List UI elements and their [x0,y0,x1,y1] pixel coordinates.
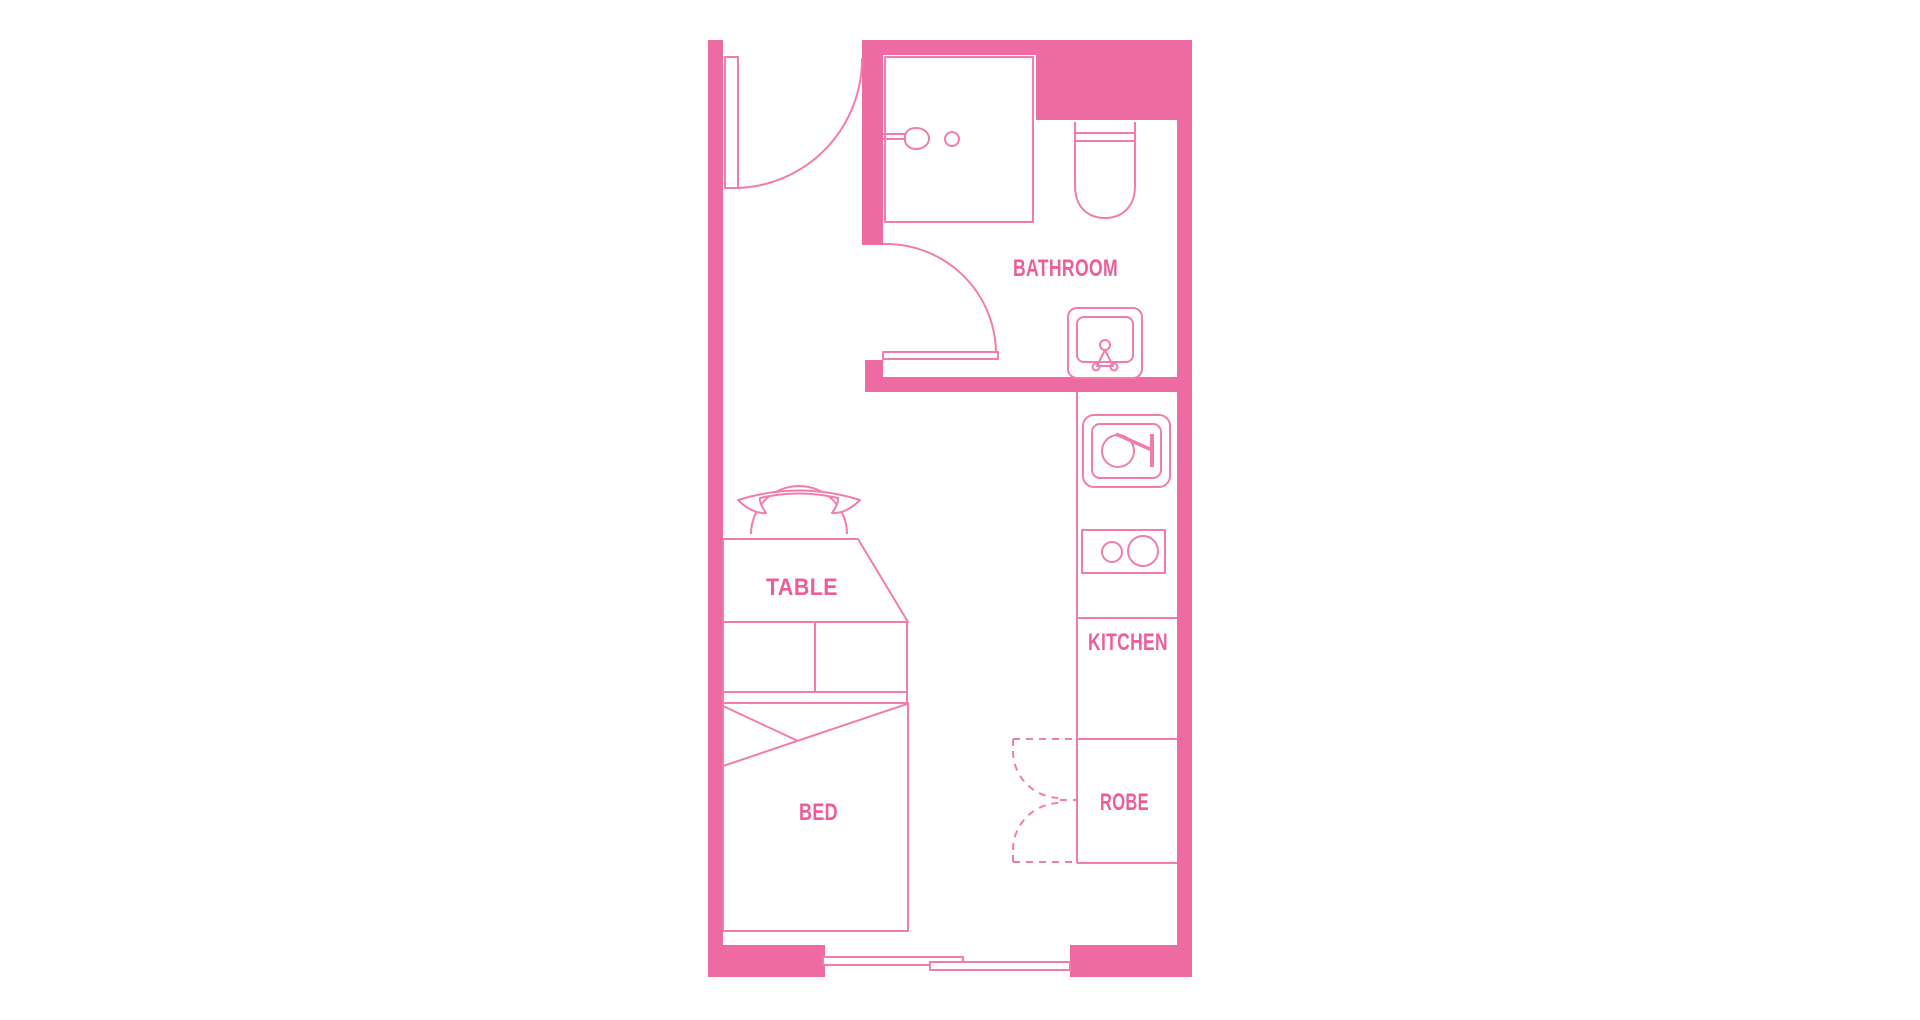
floor-plan: BATHROOM KITCHEN ROBE [0,0,1920,1020]
walls [708,40,1192,977]
wall-bathroom-bottom [865,377,1192,392]
toilet-icon [1075,122,1135,218]
drawers-icon [723,622,907,703]
bathroom-door-swing-arc [883,244,996,352]
wall-bottom-left [708,945,825,977]
table-area: TABLE [723,486,908,703]
room-label-kitchen: KITCHEN [1088,629,1168,656]
room-label-bed: BED [799,799,838,826]
window-icon [823,957,1070,970]
shower-mixer-icon [945,132,959,146]
wall-bottom-right [1070,945,1192,977]
bathroom-door-icon [883,244,998,359]
wall-bathroom-door-jamb [865,360,883,380]
wall-right [1177,40,1192,977]
shower-head-icon [883,128,929,149]
bed-area: BED [723,703,908,931]
wall-top-right-block [1036,40,1192,120]
robe: ROBE [1013,739,1149,862]
entry-door-icon [725,57,862,188]
wall-bathroom-partition [862,40,883,245]
bathroom-door-leaf [883,352,998,359]
entry-door-leaf [725,57,738,188]
cooktop-icon [1082,530,1165,573]
room-label-bathroom: BATHROOM [1013,255,1118,282]
basin-icon [1068,308,1142,378]
window-panel-2 [930,962,1070,970]
kitchen-sink-icon [1083,415,1170,487]
chair-icon [738,486,860,534]
entry-door-swing-arc [738,58,862,188]
bifold-doors-icon [1013,739,1077,862]
room-label-table: TABLE [766,574,838,601]
room-label-robe: ROBE [1100,789,1149,816]
wall-left [708,40,723,977]
